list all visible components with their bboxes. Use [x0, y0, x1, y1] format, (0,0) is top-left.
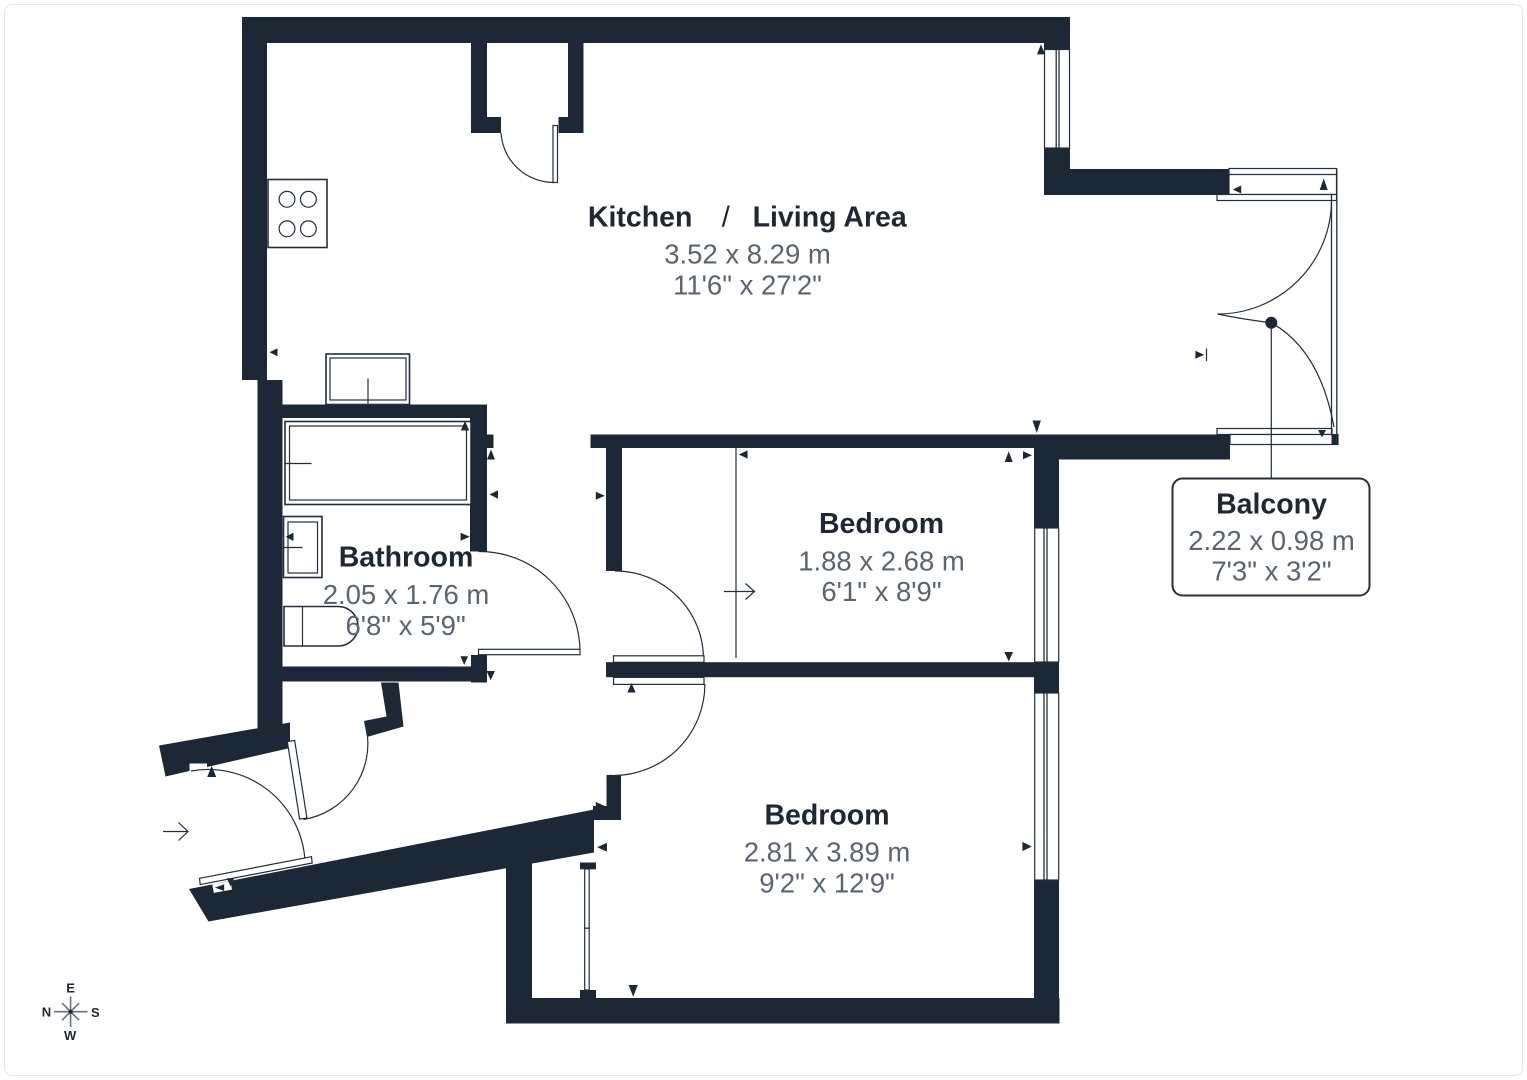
svg-text:Bathroom: Bathroom [339, 542, 474, 574]
svg-text:6'1" x 8'9": 6'1" x 8'9" [821, 576, 941, 607]
svg-text:3.52 x 8.29 m: 3.52 x 8.29 m [664, 239, 831, 270]
svg-text:1.88 x 2.68 m: 1.88 x 2.68 m [798, 546, 965, 577]
svg-text:S: S [91, 1005, 100, 1020]
svg-text:2.05 x 1.76 m: 2.05 x 1.76 m [323, 579, 490, 610]
svg-text:E: E [66, 981, 75, 996]
svg-text:6'8" x 5'9": 6'8" x 5'9" [345, 610, 465, 641]
svg-text:N: N [42, 1005, 51, 1020]
svg-text:/: / [722, 202, 731, 234]
svg-text:Living Area: Living Area [753, 202, 908, 234]
svg-text:Bedroom: Bedroom [764, 800, 889, 832]
svg-text:W: W [64, 1028, 77, 1043]
svg-text:2.22 x 0.98 m: 2.22 x 0.98 m [1188, 525, 1355, 556]
svg-text:9'2" x 12'9": 9'2" x 12'9" [759, 868, 895, 899]
svg-text:Bedroom: Bedroom [819, 508, 944, 540]
svg-text:11'6" x 27'2": 11'6" x 27'2" [673, 270, 822, 301]
svg-text:2.81 x 3.89 m: 2.81 x 3.89 m [744, 837, 911, 868]
svg-text:Balcony: Balcony [1216, 489, 1327, 521]
svg-text:Kitchen: Kitchen [588, 202, 693, 234]
svg-text:7'3" x 3'2": 7'3" x 3'2" [1211, 556, 1331, 587]
